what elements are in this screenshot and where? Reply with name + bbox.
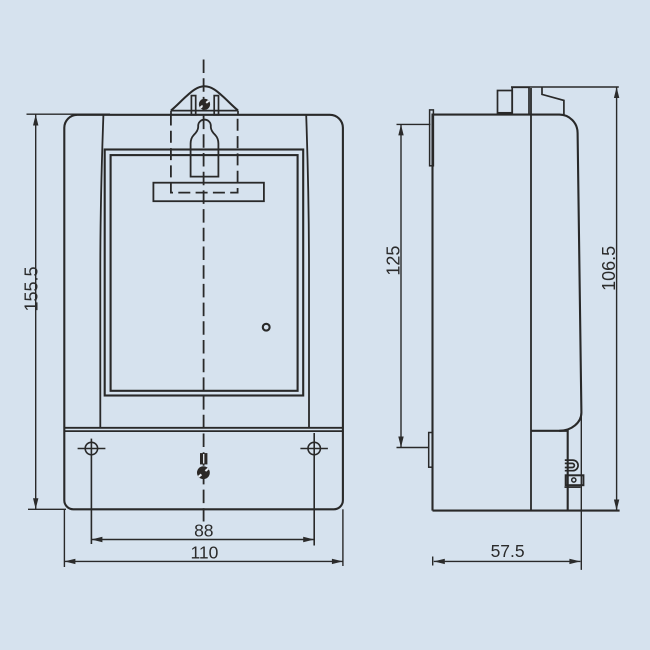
svg-text:110: 110 [190, 542, 218, 562]
svg-text:125: 125 [384, 246, 404, 276]
svg-text:155.5: 155.5 [22, 266, 42, 311]
svg-text:106.5: 106.5 [599, 246, 619, 291]
svg-text:88: 88 [194, 520, 213, 540]
svg-text:57.5: 57.5 [491, 541, 525, 561]
